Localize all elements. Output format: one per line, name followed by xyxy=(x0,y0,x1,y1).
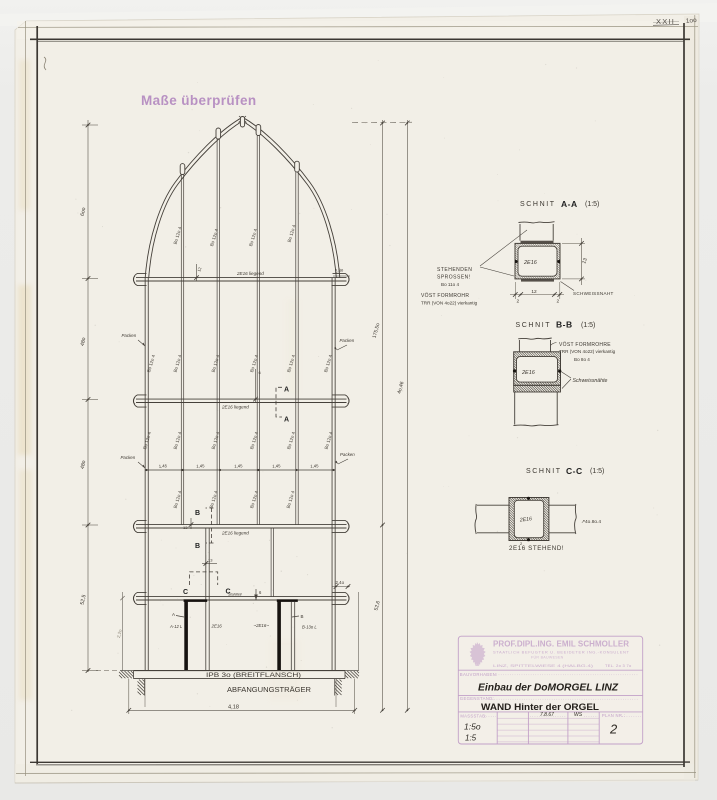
svg-text:2: 2 xyxy=(609,722,618,737)
svg-text:B: B xyxy=(195,543,200,550)
svg-text:1,45: 1,45 xyxy=(234,463,243,469)
svg-text:2E16: 2E16 xyxy=(211,624,223,629)
svg-text:2: 2 xyxy=(557,299,560,305)
svg-text:(1:5): (1:5) xyxy=(581,322,595,329)
svg-text:ABFANGUNGSTRÄGER: ABFANGUNGSTRÄGER xyxy=(227,685,312,694)
svg-text:PLAN NR.:: PLAN NR.: xyxy=(602,713,625,718)
svg-text:Packen: Packen xyxy=(121,455,136,460)
svg-text:VÖST FORMROHR: VÖST FORMROHR xyxy=(421,292,469,299)
svg-text:4,18: 4,18 xyxy=(228,705,239,711)
svg-text:Maße überprüfen: Maße überprüfen xyxy=(141,93,257,108)
svg-text:SCHNIT: SCHNIT xyxy=(526,468,562,475)
svg-text:PROF.DIPL.ING. EMIL SCHMOLLER: PROF.DIPL.ING. EMIL SCHMOLLER xyxy=(493,639,629,648)
svg-text:VÖST FORMROHRE: VÖST FORMROHRE xyxy=(559,341,611,348)
svg-text:1,45: 1,45 xyxy=(196,463,205,469)
svg-text:1:5: 1:5 xyxy=(465,734,477,743)
svg-text:STEHENDEN: STEHENDEN xyxy=(437,267,472,273)
svg-text:2E16 STEHEND!: 2E16 STEHEND! xyxy=(509,545,564,552)
svg-text:TRR (VON 4o22) vierkantig: TRR (VON 4o22) vierkantig xyxy=(421,301,478,306)
svg-text:Packen: Packen xyxy=(340,452,355,457)
svg-text:7.8.67: 7.8.67 xyxy=(540,712,554,718)
svg-text:SPROSSEN!: SPROSSEN! xyxy=(437,275,471,281)
svg-text:2,4o: 2,4o xyxy=(336,580,345,585)
svg-text:C: C xyxy=(226,589,231,596)
svg-text:Bo 8o 4: Bo 8o 4 xyxy=(574,357,590,362)
svg-text:STAATLICH BEFUGTER U. BEEIDETE: STAATLICH BEFUGTER U. BEEIDETER ING.-KON… xyxy=(493,649,630,654)
svg-text:A: A xyxy=(284,417,289,424)
svg-text:(1:5): (1:5) xyxy=(585,201,599,208)
svg-text:B: B xyxy=(301,614,304,619)
svg-text:(1:5): (1:5) xyxy=(590,468,604,475)
svg-text:2E16 liegend: 2E16 liegend xyxy=(236,271,264,276)
svg-text:13: 13 xyxy=(208,558,213,563)
svg-text:SCHWEISSNAHT: SCHWEISSNAHT xyxy=(573,291,614,296)
svg-text:2E16 liegend: 2E16 liegend xyxy=(221,405,249,410)
svg-text:A-A: A-A xyxy=(561,199,578,209)
svg-text:LINZ, SPITTELWIESE 4 (HALBG.4): LINZ, SPITTELWIESE 4 (HALBG.4) xyxy=(493,663,594,668)
svg-text:TRR (VON 4o22) vierkantig: TRR (VON 4o22) vierkantig xyxy=(559,349,616,354)
svg-text:B-13o L: B-13o L xyxy=(302,625,317,630)
svg-text:2: 2 xyxy=(517,299,520,305)
svg-text:C-C: C-C xyxy=(566,466,583,476)
svg-text:B: B xyxy=(195,510,200,517)
svg-text:12: 12 xyxy=(531,289,537,295)
svg-text:TEL. 2o 3 7o: TEL. 2o 3 7o xyxy=(605,663,632,668)
svg-text:A: A xyxy=(172,612,175,617)
svg-text:2E16: 2E16 xyxy=(521,370,536,376)
svg-text:Bo 11o 4: Bo 11o 4 xyxy=(441,282,459,287)
svg-text:SCHNIT: SCHNIT xyxy=(520,201,556,208)
svg-text:Schweissnähte: Schweissnähte xyxy=(573,378,608,384)
svg-text:MASSSTAB:: MASSSTAB: xyxy=(460,713,486,718)
svg-text:1,45: 1,45 xyxy=(272,463,281,469)
svg-text:FÜR BAUWESEN: FÜR BAUWESEN xyxy=(531,655,564,659)
svg-text:C: C xyxy=(183,589,188,596)
svg-text:SCHNIT: SCHNIT xyxy=(516,322,552,329)
svg-text:↗4o.8o.4: ↗4o.8o.4 xyxy=(581,519,601,525)
svg-text:Packen: Packen xyxy=(340,338,355,343)
svg-text:2E16 liegend: 2E16 liegend xyxy=(221,531,249,536)
svg-text:A: A xyxy=(284,387,289,394)
svg-text:BAUVORHABEN:: BAUVORHABEN: xyxy=(460,672,498,677)
svg-text:13: 13 xyxy=(183,525,188,530)
svg-text:B-B: B-B xyxy=(556,320,573,330)
svg-text:A-12 L: A-12 L xyxy=(169,624,183,629)
svg-text:2E16: 2E16 xyxy=(523,260,538,266)
svg-text:GEGENSTAND:: GEGENSTAND: xyxy=(460,696,494,701)
svg-text:1oo: 1oo xyxy=(685,17,697,25)
svg-text:1,45: 1,45 xyxy=(310,463,319,469)
svg-text:Packen: Packen xyxy=(122,333,137,338)
svg-text:~2E16~: ~2E16~ xyxy=(254,623,270,628)
svg-text:IPB 3o (BREITFLANSCH): IPB 3o (BREITFLANSCH) xyxy=(206,673,301,679)
svg-text:1,45: 1,45 xyxy=(159,463,168,469)
svg-text:1:5o: 1:5o xyxy=(464,722,481,732)
svg-text:WS: WS xyxy=(574,712,583,718)
svg-text:Einbau der DoMORGEL LINZ: Einbau der DoMORGEL LINZ xyxy=(478,682,619,694)
